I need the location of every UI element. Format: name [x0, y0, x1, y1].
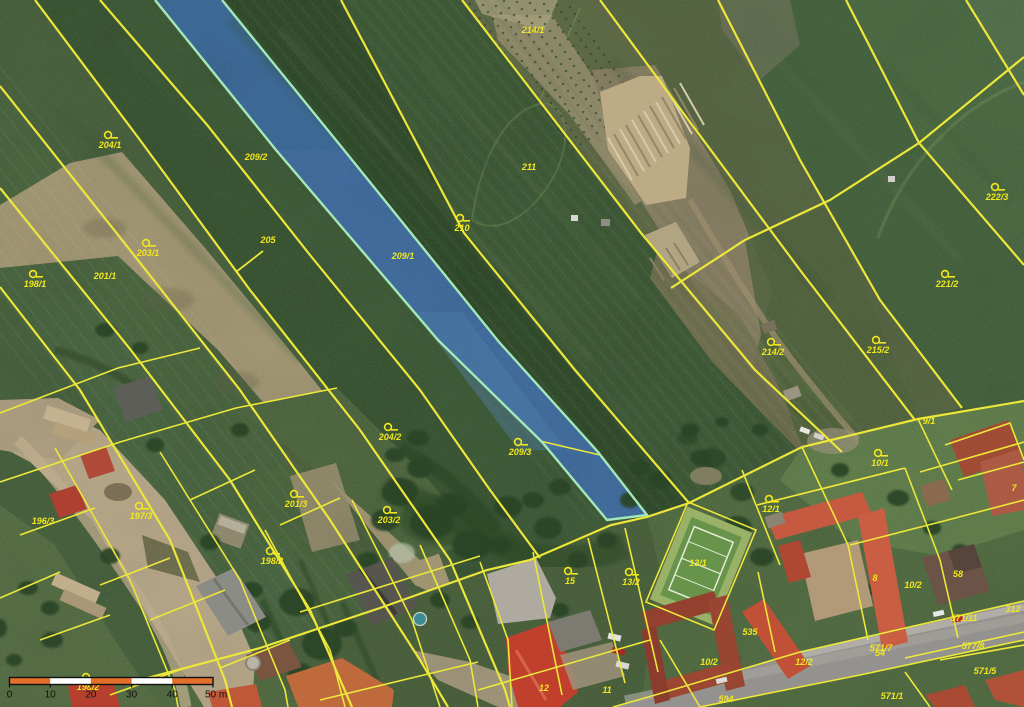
svg-text:13/1: 13/1	[689, 558, 707, 568]
svg-text:571/11: 571/11	[951, 613, 978, 623]
svg-text:9/1: 9/1	[923, 416, 936, 426]
svg-text:10/1: 10/1	[871, 458, 889, 468]
svg-text:577/8: 577/8	[962, 641, 985, 651]
svg-text:12/2: 12/2	[795, 657, 813, 667]
svg-text:204/1: 204/1	[98, 140, 122, 150]
svg-text:214/2: 214/2	[761, 347, 785, 357]
svg-text:15: 15	[565, 576, 576, 586]
svg-text:209/2: 209/2	[244, 152, 268, 162]
svg-text:196/3: 196/3	[32, 516, 55, 526]
svg-text:20: 20	[85, 690, 97, 701]
svg-text:197/3: 197/3	[130, 511, 153, 521]
svg-text:201/1: 201/1	[93, 271, 117, 281]
svg-text:210: 210	[453, 223, 469, 233]
svg-text:312: 312	[1005, 604, 1020, 614]
svg-text:594: 594	[718, 694, 733, 704]
svg-text:10/2: 10/2	[904, 580, 922, 590]
svg-text:12: 12	[539, 683, 549, 693]
svg-text:0: 0	[7, 690, 13, 701]
svg-text:40: 40	[167, 690, 179, 701]
svg-text:209/1: 209/1	[391, 251, 415, 261]
svg-text:211: 211	[521, 162, 536, 172]
svg-text:11: 11	[602, 685, 611, 695]
svg-text:221/2: 221/2	[935, 279, 959, 289]
svg-text:571/7: 571/7	[870, 643, 894, 653]
svg-text:30: 30	[126, 690, 138, 701]
svg-text:571/5: 571/5	[974, 666, 998, 676]
svg-text:8: 8	[872, 573, 877, 583]
svg-text:58: 58	[953, 569, 963, 579]
svg-text:10/2: 10/2	[700, 657, 718, 667]
svg-text:204/2: 204/2	[378, 432, 402, 442]
svg-text:201/3: 201/3	[284, 499, 308, 509]
svg-text:209/3: 209/3	[508, 447, 532, 457]
svg-text:214/1: 214/1	[521, 25, 545, 35]
svg-text:203/1: 203/1	[136, 248, 160, 258]
svg-text:571/1: 571/1	[881, 691, 904, 701]
svg-text:205: 205	[259, 235, 276, 245]
svg-text:13/2: 13/2	[622, 577, 640, 587]
svg-text:10: 10	[45, 690, 57, 701]
svg-text:12/1: 12/1	[762, 504, 780, 514]
svg-text:50 m: 50 m	[205, 690, 227, 701]
svg-text:535: 535	[742, 627, 758, 637]
svg-text:198/1: 198/1	[24, 279, 47, 289]
svg-text:203/2: 203/2	[377, 515, 401, 525]
svg-text:215/2: 215/2	[866, 345, 890, 355]
svg-text:198/2: 198/2	[261, 556, 284, 566]
svg-text:222/3: 222/3	[985, 192, 1009, 202]
